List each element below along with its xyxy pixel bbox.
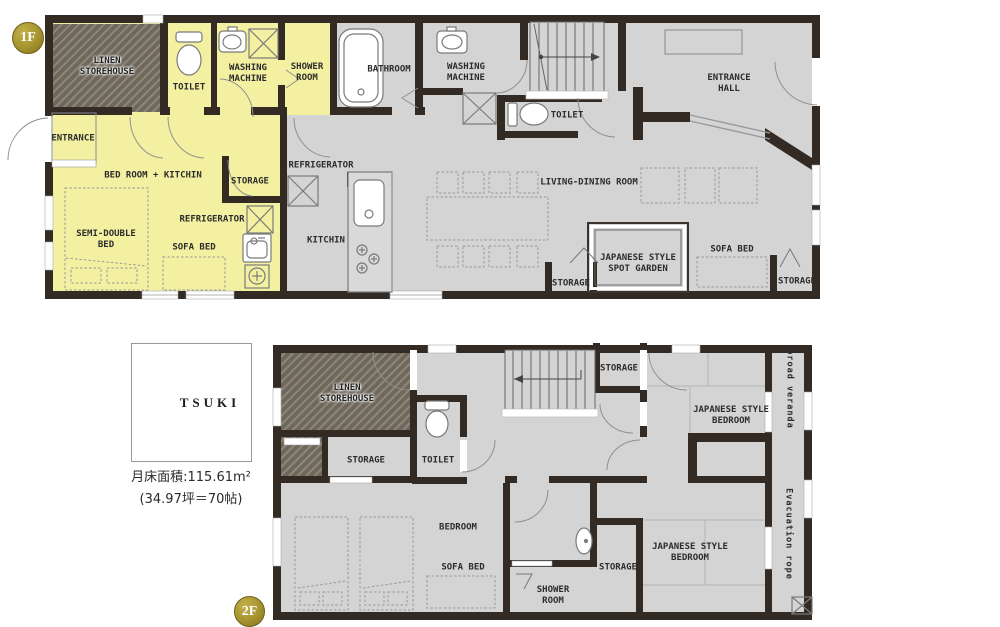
room-label-bedroom-2f: BEDROOM [439,522,477,533]
room-label-shower-room-2f: SHOWER ROOM [537,585,570,608]
kitchen-sink-icon-1f-unit [243,234,271,262]
toilet-icon-2f [425,401,449,437]
room-label-jp-bedroom-top-2f: JAPANESE STYLE BEDROOM [693,405,769,428]
label-broad-veranda-2f: broad veranda [784,349,795,429]
label-sofa-bed-unit-1f: SOFA BED [172,242,215,253]
label-refrigerator-1f: REFRIGERATOR [288,160,353,171]
label-semi-double-bed-1f: SEMI-DOUBLE BED [76,229,136,252]
label-sofa-bed-1f: SOFA BED [710,244,753,255]
room-label-spot-garden-1f: JAPANESE STYLE SPOT GARDEN [600,253,676,276]
room-label-living-dining-1f: LIVING-DINING ROOM [540,177,638,188]
floor-plan-page: 1F 2F TSUKI 月床面積:115.61m² (34.97坪＝70帖) L… [0,0,1000,627]
room-label-bathroom-1f: BATHROOM [367,64,410,75]
stairs-2f [502,350,598,417]
room-label-storage-mid-2f: STORAGE [599,562,637,573]
room-label-washing-machine-unit-1f: WASHING MACHINE [229,63,267,86]
tsuki-logo-text: TSUKI [180,395,240,411]
label-refrigerator-unit-1f: REFRIGERATOR [179,214,244,225]
room-label-storage-top-2f: STORAGE [600,363,638,374]
room-label-storage-left-2f: STORAGE [347,455,385,466]
room-label-toilet-unit-1f: TOILET [173,82,206,93]
room-label-toilet-2f: TOILET [422,455,455,466]
room-label-kitchen-1f: KITCHIN [307,235,345,246]
room-label-storage-unit-1f: STORAGE [231,176,269,187]
floor-badge-1f: 1F [12,22,44,54]
basin-icon-2f [576,528,592,554]
floor-area-line2: (34.97坪＝70帖) [140,488,243,507]
label-sofa-bed-2f: SOFA BED [441,562,484,573]
sink-icon-1f-washroom [437,27,467,53]
closet-shelf-2f [284,438,320,445]
floor-area-line1: 月床面積:115.61m² [131,466,251,485]
room-label-washing-machine-1f: WASHING MACHINE [447,62,485,85]
room-label-entrance-1f: ENTRANCE [51,133,94,144]
room-label-storage-center-1f: STORAGE [552,278,590,289]
floor-plan-drawing [0,0,1000,627]
floor-badge-2f: 2F [234,596,265,627]
toilet-icon-1f-hall [508,103,548,126]
stairs-1f [526,22,608,99]
label-evacuation-rope-2f: Evacuation rope [783,488,794,580]
room-label-linen-storehouse-1f: LINEN STOREHOUSE [80,56,134,79]
room-label-shower-room-1f: SHOWER ROOM [291,62,324,85]
room-label-entrance-hall-1f: ENTRANCE HALL [707,73,750,96]
room-label-bedroom-kitchen-1f: BED ROOM + KITCHIN [104,170,202,181]
room-label-linen-storehouse-2f: LINEN STOREHOUSE [320,383,374,406]
room-label-jp-bedroom-bottom-2f: JAPANESE STYLE BEDROOM [652,542,728,565]
sink-icon-1f-unit [219,27,246,52]
toilet-icon-1f-unit [176,32,202,75]
kitchen-counter-1f [348,172,392,292]
room-label-storage-right-1f: STORAGE [778,276,816,287]
room-label-toilet-1f: TOILET [551,110,584,121]
